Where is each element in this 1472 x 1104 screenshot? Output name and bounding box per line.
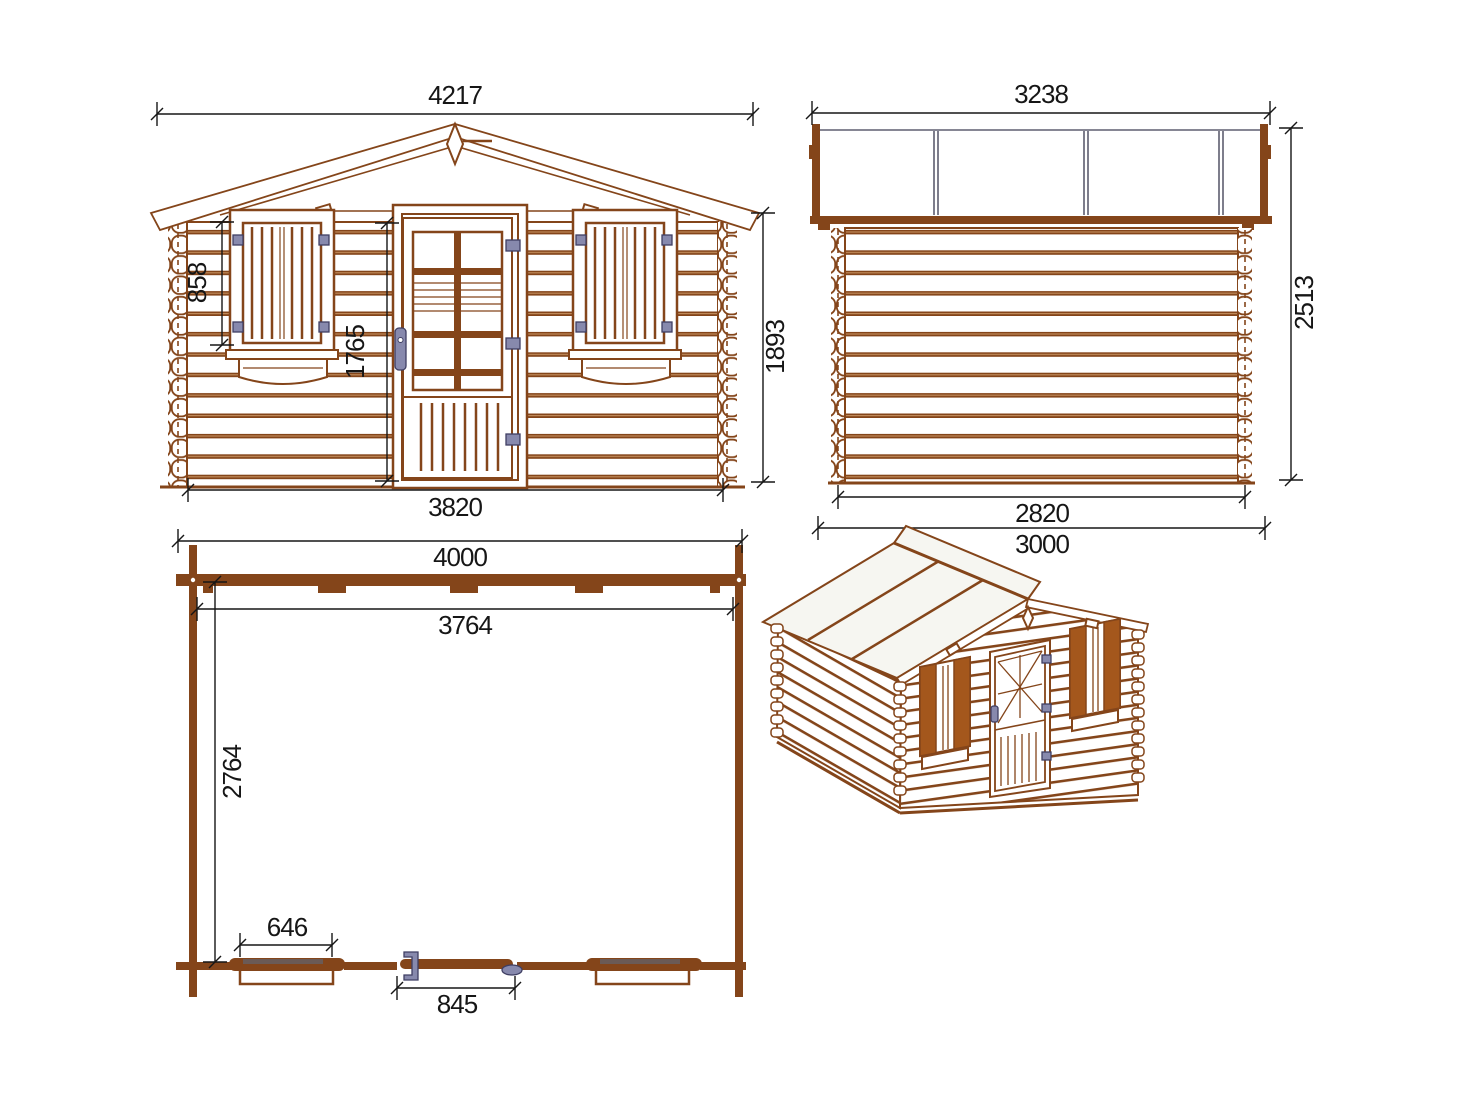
front-elevation-view: 4217 858 1765 1893 — [151, 80, 790, 522]
iso-door-handle-icon — [991, 706, 998, 722]
dim-label-door-width: 845 — [437, 989, 478, 1019]
side-wall-logs — [845, 228, 1238, 483]
plan-door — [400, 952, 522, 980]
shutter-hinge-icon — [662, 235, 672, 245]
roof-fascia-band — [810, 216, 1272, 224]
dim-label-wall-depth: 2820 — [1015, 498, 1069, 528]
iso-shutter — [920, 664, 936, 756]
dim-label-base-width: 3820 — [428, 492, 482, 522]
iso-window-right — [1070, 619, 1120, 731]
window-sill — [569, 350, 681, 359]
iso-door-hinge-icon — [1042, 655, 1051, 663]
plan-roof-tab — [318, 586, 346, 593]
roof-end-board-left — [812, 124, 820, 218]
dim-label-total-height: 2513 — [1289, 276, 1319, 330]
plan-flower-box — [240, 971, 333, 984]
plan-bottom-wall-segment — [344, 962, 397, 970]
flower-box — [239, 359, 327, 384]
plan-window-right — [586, 958, 702, 984]
dim-label-roof-depth: 3238 — [1014, 79, 1068, 109]
plan-bottom-wall-segment — [517, 962, 590, 970]
shutter-frame — [243, 223, 321, 343]
shutter-hinge-icon — [319, 235, 329, 245]
iso-shutter — [1104, 619, 1120, 711]
plan-door-hinge-icon — [502, 965, 522, 975]
door-hinge-icon — [506, 240, 520, 251]
plan-window-glazing — [600, 959, 680, 964]
flower-box — [582, 359, 670, 384]
dim-label-inner-width: 3764 — [438, 610, 492, 640]
plan-bottom-wall-segment — [176, 962, 232, 970]
front-door — [393, 205, 527, 488]
front-window-left — [226, 210, 338, 384]
roof-board-notch-left — [809, 145, 814, 159]
dim-label-outer-width: 4000 — [433, 542, 487, 572]
roof-board-notch-right — [1266, 145, 1271, 159]
shutter-frame — [586, 223, 664, 343]
door-muntin — [413, 369, 502, 376]
shutter-hinge-icon — [662, 322, 672, 332]
side-elevation-view: 3238 2513 2820 3000 — [806, 79, 1319, 559]
door-keyhole-icon — [398, 338, 403, 343]
iso-door — [990, 640, 1051, 797]
shutter-hinge-icon — [319, 322, 329, 332]
dim-label-inner-depth: 2764 — [217, 745, 247, 799]
door-hinge-icon — [506, 434, 520, 445]
floor-plan-view: 4000 3764 2764 646 — [172, 529, 748, 1019]
plan-peg-hole — [191, 578, 195, 582]
dim-label-door-height: 1765 — [340, 325, 370, 379]
plan-roof-tab — [450, 586, 478, 593]
iso-roof-cleat — [1085, 619, 1098, 628]
side-wall — [828, 228, 1255, 483]
iso-window-left — [920, 657, 970, 769]
iso-shutter — [954, 657, 970, 749]
plan-window-left — [229, 958, 345, 984]
iso-shutter — [1070, 626, 1086, 718]
iso-door-hinge-icon — [1042, 704, 1051, 712]
iso-door-hinge-icon — [1042, 752, 1051, 760]
plan-flower-box — [596, 971, 689, 984]
dim-label-base-depth: 3000 — [1015, 529, 1069, 559]
side-roof — [809, 124, 1272, 230]
shutter-hinge-icon — [233, 322, 243, 332]
door-muntin — [413, 268, 502, 275]
shutter-hinge-icon — [576, 322, 586, 332]
plan-roof-tab — [575, 586, 603, 593]
plan-roof-tab — [710, 586, 720, 593]
door-muntin — [413, 331, 502, 338]
dim-label-window-height: 858 — [182, 262, 212, 303]
plan-roof-tab — [203, 586, 213, 593]
front-window-right — [569, 210, 681, 384]
shutter-hinge-icon — [576, 235, 586, 245]
door-hinge-icon — [506, 338, 520, 349]
eave-tip-left — [818, 224, 830, 230]
perspective-view — [763, 526, 1148, 813]
plan-window-glazing — [243, 959, 323, 964]
plan-peg-hole — [737, 578, 741, 582]
dim-label-total-width: 4217 — [428, 80, 482, 110]
cabin-technical-drawing: 4217 858 1765 1893 — [0, 0, 1472, 1104]
dim-label-window-width: 646 — [267, 912, 308, 942]
roof-rafter-dividers — [934, 131, 1223, 215]
dim-label-wall-height: 1893 — [760, 320, 790, 374]
plan-dimensions: 4000 3764 2764 646 — [172, 529, 748, 1019]
plan-top-wall — [176, 574, 746, 586]
shutter-hinge-icon — [233, 235, 243, 245]
roof-end-board-right — [1260, 124, 1268, 218]
door-handle-icon — [395, 328, 406, 370]
plan-bottom-wall-segment — [700, 962, 746, 970]
plan-side-wall-right — [735, 545, 743, 997]
window-sill — [226, 350, 338, 359]
